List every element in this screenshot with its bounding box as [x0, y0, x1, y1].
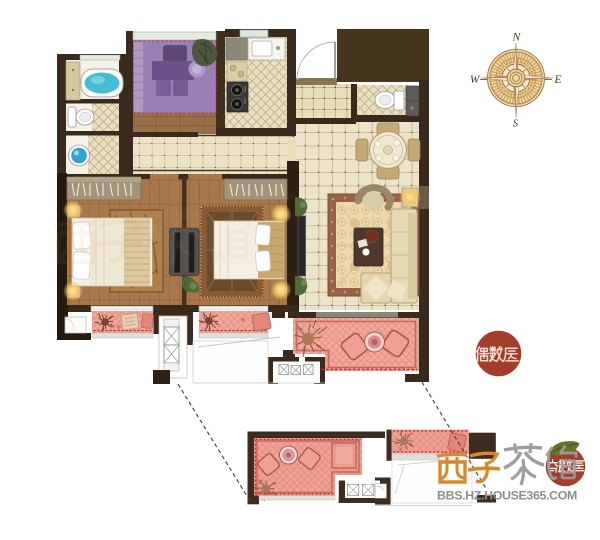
svg-text:N: N	[512, 32, 522, 44]
svg-text:E: E	[554, 74, 562, 86]
svg-text:S: S	[513, 119, 519, 130]
svg-text:W: W	[470, 74, 481, 86]
svg-text:BBS.HZ.HOUSE365.COM: BBS.HZ.HOUSE365.COM	[437, 489, 577, 503]
